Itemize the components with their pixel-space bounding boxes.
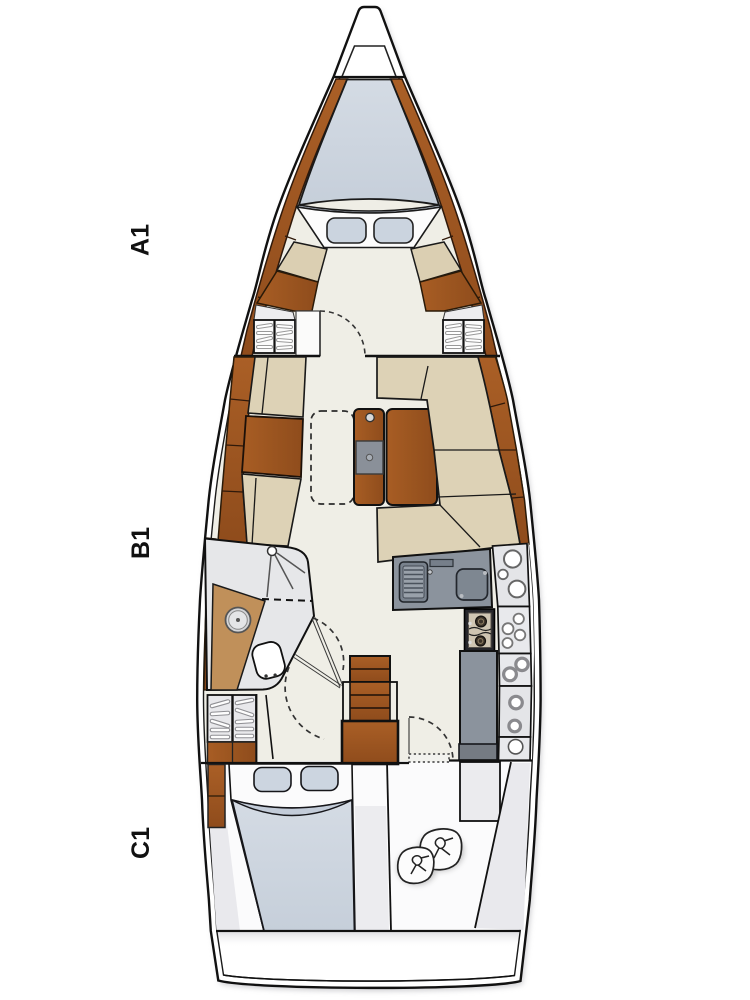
svg-text:C1: C1 <box>127 827 155 859</box>
svg-text:B1: B1 <box>127 527 155 559</box>
svg-text:A1: A1 <box>127 224 155 256</box>
